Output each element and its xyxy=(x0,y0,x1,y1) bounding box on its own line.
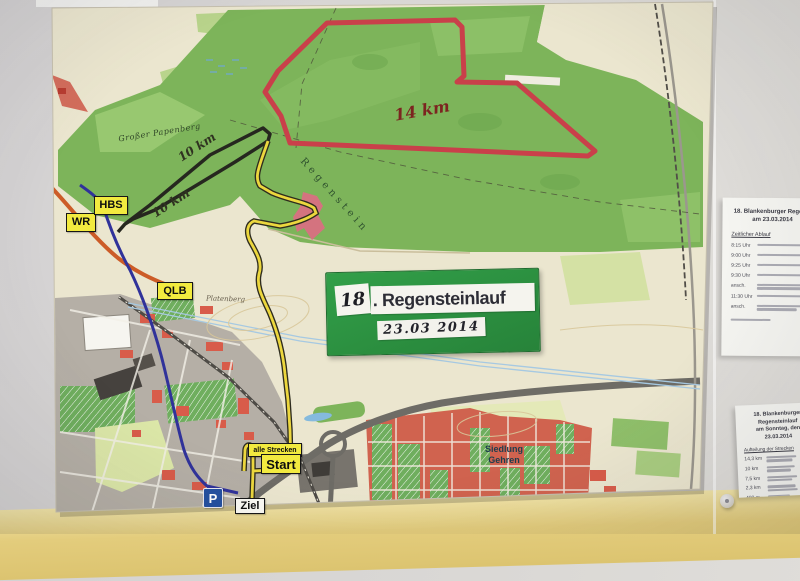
map-content xyxy=(45,0,725,520)
schedule-title-2: am 23.03.2014 xyxy=(731,216,800,225)
schedule-row: ansch. xyxy=(731,282,800,290)
schedule-row: 9:00 Uhr xyxy=(731,252,800,259)
marker-hbs-text: HBS xyxy=(99,200,122,211)
distances-sheet: 18. Blankenburger Regensteinlauf am Sonn… xyxy=(735,402,800,497)
marker-parking-text: P xyxy=(209,492,218,505)
event-number: 18 xyxy=(339,288,366,311)
event-title: . Regensteinlauf xyxy=(373,287,506,311)
marker-parking: P xyxy=(203,488,223,508)
schedule-footnote-line xyxy=(731,318,771,321)
marker-hbs: HBS xyxy=(94,196,128,215)
schedule-time: ansch. xyxy=(731,282,753,288)
marker-qlb-text: QLB xyxy=(163,286,186,297)
schedule-row: 9:30 Uhr xyxy=(731,272,800,279)
event-title-strip: . Regensteinlauf xyxy=(370,283,535,314)
distances-title-2: am Sonntag, den 23.03.2014 xyxy=(743,425,800,443)
schedule-time: 8:15 Uhr xyxy=(731,242,753,248)
distances-row: 10 km xyxy=(745,463,800,473)
event-date: 23.03 2014 xyxy=(383,319,480,338)
event-sign: 18 . Regensteinlauf 23.03 2014 xyxy=(325,268,541,356)
push-pin xyxy=(720,494,734,508)
distances-row: 2,3 km xyxy=(746,483,800,493)
event-number-patch: 18 xyxy=(334,283,371,316)
marker-start-text: Start xyxy=(266,458,296,471)
marker-start: Start xyxy=(261,454,301,474)
schedule-time: 11:30 Uhr xyxy=(731,293,753,299)
marker-wr-text: WR xyxy=(72,217,90,228)
event-date-strip: 23.03 2014 xyxy=(377,317,486,340)
distances-row: 14,3 km xyxy=(744,453,800,463)
toponym-platenberg: Platenberg xyxy=(206,294,245,303)
marker-ziel: Ziel xyxy=(235,498,265,514)
schedule-row: 11:30 Uhr xyxy=(731,293,800,300)
schedule-row: ansch. xyxy=(731,303,800,311)
distance-value: 7,5 km xyxy=(745,475,763,482)
marker-qlb: QLB xyxy=(157,282,193,300)
toponym-siedlung-line2: Gehren xyxy=(476,455,532,466)
map-artwork xyxy=(0,0,800,534)
schedule-sheet: 18. Blankenburger Regenst am 23.03.2014 … xyxy=(721,198,800,357)
marker-alle-strecken-text: alle Strecken xyxy=(253,447,296,454)
schedule-heading: Zeitlicher Ablauf xyxy=(731,231,800,238)
distances-heading: Aufteilung der Strecken xyxy=(744,445,800,453)
marker-wr: WR xyxy=(66,213,96,232)
schedule-time: ansch. xyxy=(731,303,753,309)
photo-of-wall-map: { "sign": { "number": "18", "title": ". … xyxy=(0,0,800,534)
schedule-time: 9:00 Uhr xyxy=(731,252,753,258)
distances-row: 7,5 km xyxy=(745,473,800,483)
toponym-siedlung-line1: Siedlung xyxy=(476,444,532,455)
schedule-row: 8:15 Uhr xyxy=(731,242,800,249)
push-pin-center xyxy=(725,499,729,503)
distance-value: 10 km xyxy=(745,465,763,472)
schedule-row: 9:25 Uhr xyxy=(731,262,800,269)
schedule-time: 9:25 Uhr xyxy=(731,262,753,268)
schedule-time: 9:30 Uhr xyxy=(731,272,753,278)
toponym-siedlung-gehren: Siedlung Gehren xyxy=(476,444,532,466)
scene: WR HBS QLB alle Strecken Start Ziel P 14… xyxy=(0,0,800,534)
distance-value: 14,3 km xyxy=(744,455,762,462)
marker-ziel-text: Ziel xyxy=(241,501,260,512)
distance-value: 2,3 km xyxy=(746,485,764,492)
